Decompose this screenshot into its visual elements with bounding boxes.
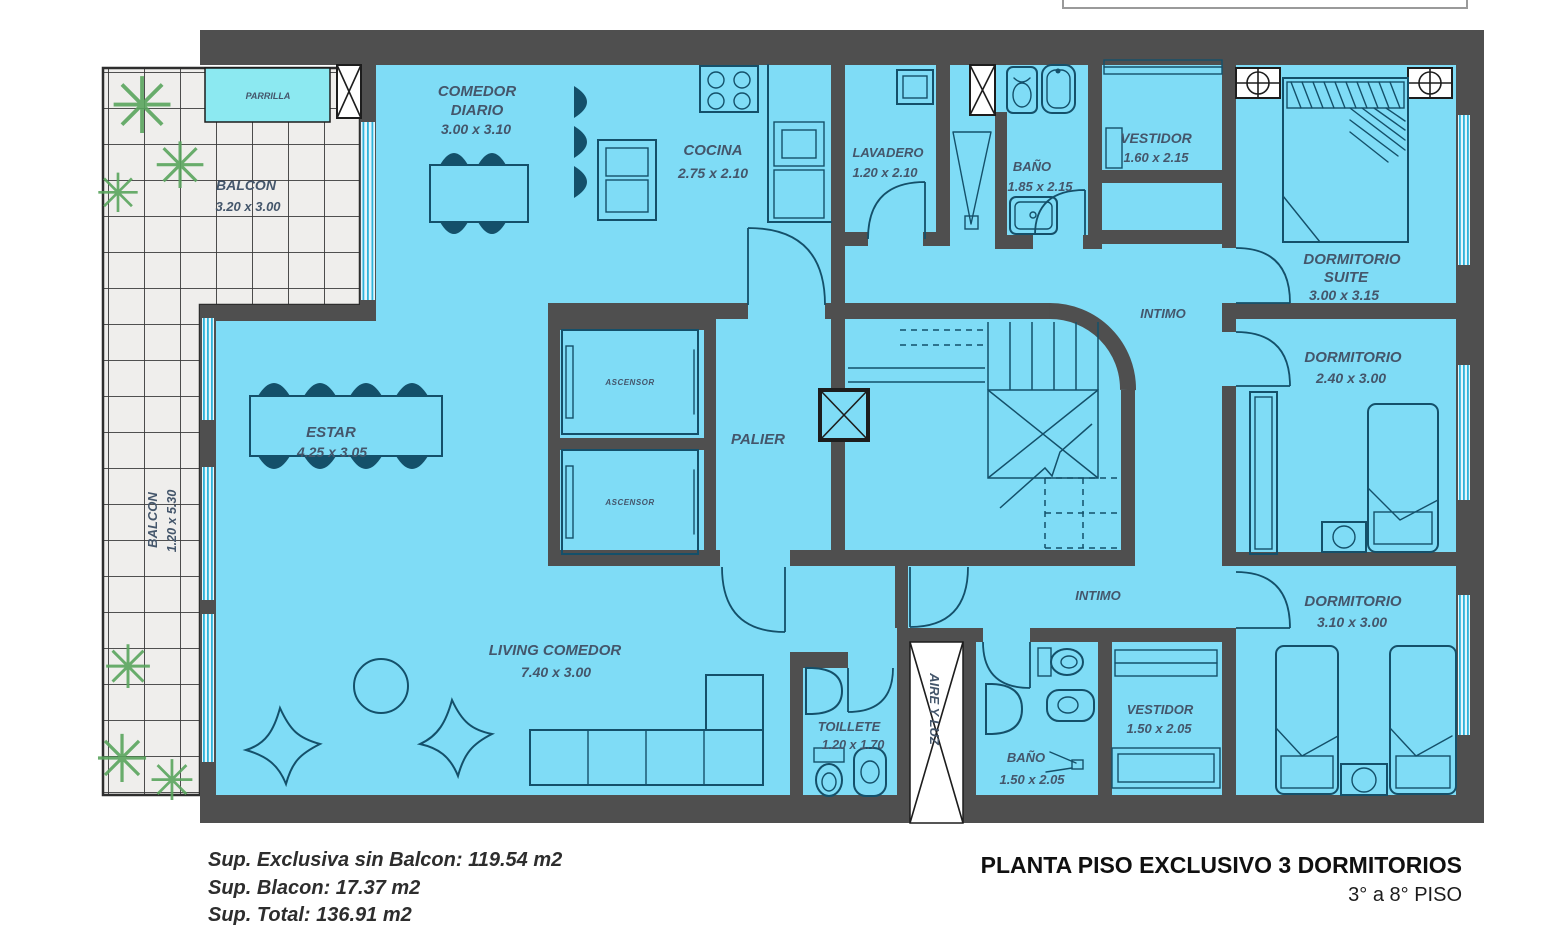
label-bano-bottom-dims: 1.50 x 2.05 <box>999 772 1065 787</box>
label-lavadero: LAVADERO <box>852 145 923 160</box>
plan-subtitle: 3° a 8° PISO <box>1348 884 1462 906</box>
label-balcon-left: BALCON <box>145 492 160 548</box>
label-vestidor-bottom-dims: 1.50 x 2.05 <box>1126 721 1192 736</box>
label-suite-2: SUITE <box>1324 269 1369 286</box>
window-left-2 <box>202 467 214 600</box>
window-right-suite <box>1458 115 1470 265</box>
label-toillete-dims: 1.20 x 1.70 <box>822 738 885 752</box>
label-balcon-top-dims: 3.20 x 3.00 <box>215 199 281 214</box>
window-left-3 <box>202 614 214 762</box>
label-dorm-bottom: DORMITORIO <box>1304 593 1402 610</box>
area-exclusive-text: Sup. Exclusiva sin Balcon: 119.54 m2 <box>208 849 562 871</box>
label-lavadero-dims: 1.20 x 2.10 <box>852 165 918 180</box>
plan-title: PLANTA PISO EXCLUSIVO 3 DORMITORIOS <box>981 852 1462 878</box>
plant-icon: ✳ <box>95 164 140 224</box>
window-left-1 <box>202 318 214 420</box>
label-bano-bottom: BAÑO <box>1007 750 1045 765</box>
label-aire-luz: AIRE Y LUZ <box>927 672 942 746</box>
area-total-text: Sup. Total: 136.91 m2 <box>208 904 412 926</box>
window-x-symbol-1 <box>337 65 361 118</box>
circle-cross-symbol-1 <box>1236 68 1280 98</box>
plant-icon: ✳ <box>149 749 196 812</box>
label-vestidor-bottom: VESTIDOR <box>1127 702 1194 717</box>
label-vestidor-top-dims: 1.60 x 2.15 <box>1123 150 1189 165</box>
plant-icon: ✳ <box>94 722 149 796</box>
label-intimo-bottom: INTIMO <box>1075 588 1121 603</box>
label-comedor-2: DIARIO <box>451 102 504 119</box>
label-balcon-left-dims: 1.20 x 5.30 <box>165 490 179 553</box>
floor-plan-drawing: ✳ ✳ ✳ ✳ ✳ ✳ PARRILLA BALCON 3.20 x 3.00 … <box>0 0 1550 950</box>
label-living-dims: 7.40 x 3.00 <box>521 664 591 680</box>
cropped-header-box <box>1063 0 1467 8</box>
label-intimo-top: INTIMO <box>1140 306 1186 321</box>
label-bano-top: BAÑO <box>1013 159 1051 174</box>
label-estar-dims: 4.25 x 3.05 <box>296 444 367 460</box>
label-suite-dims: 3.00 x 3.15 <box>1309 287 1379 303</box>
label-ascensor-1: ASCENSOR <box>604 378 654 387</box>
label-dorm-mid-dims: 2.40 x 3.00 <box>1315 370 1386 386</box>
label-ascensor-2: ASCENSOR <box>604 498 654 507</box>
label-balcon-top: BALCON <box>216 177 277 193</box>
kitchen-stools <box>574 86 587 198</box>
label-comedor-1: COMEDOR <box>438 83 517 100</box>
plant-icon: ✳ <box>153 130 207 202</box>
duct-box <box>820 390 868 440</box>
label-comedor-dims: 3.00 x 3.10 <box>441 121 511 137</box>
label-living: LIVING COMEDOR <box>489 642 622 659</box>
label-palier: PALIER <box>731 431 785 448</box>
window-right-dorm2 <box>1458 365 1470 500</box>
label-toillete: TOILLETE <box>818 719 881 734</box>
plant-icon: ✳ <box>103 634 153 701</box>
label-dorm-mid: DORMITORIO <box>1304 349 1402 366</box>
area-balcony-text: Sup. Blacon: 17.37 m2 <box>208 877 420 899</box>
label-dorm-bottom-dims: 3.10 x 3.00 <box>1317 614 1387 630</box>
label-vestidor-top: VESTIDOR <box>1120 130 1192 146</box>
label-cocina-dims: 2.75 x 2.10 <box>677 165 748 181</box>
circle-cross-symbol-2 <box>1408 68 1452 98</box>
label-bano-top-dims: 1.85 x 2.15 <box>1007 179 1073 194</box>
label-parrilla: PARRILLA <box>246 91 291 101</box>
window-balcony <box>361 122 375 300</box>
window-right-dorm3 <box>1458 595 1470 735</box>
label-cocina: COCINA <box>683 142 742 159</box>
floor-plan-page: ✳ ✳ ✳ ✳ ✳ ✳ PARRILLA BALCON 3.20 x 3.00 … <box>0 0 1550 950</box>
label-suite-1: DORMITORIO <box>1303 251 1401 268</box>
label-estar: ESTAR <box>306 424 356 441</box>
window-x-symbol-2 <box>970 65 995 115</box>
